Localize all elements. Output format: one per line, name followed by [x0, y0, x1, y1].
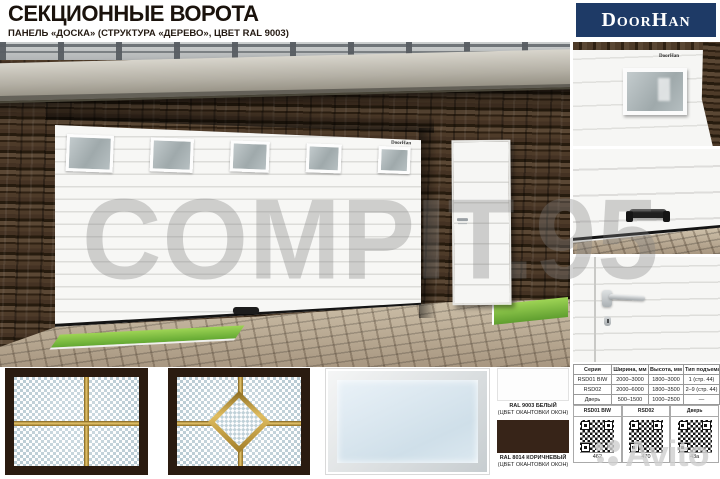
cell-series: Дверь	[574, 395, 612, 405]
brand-logo-text: DoorHan	[601, 9, 690, 32]
brand-logo: DoorHan	[576, 3, 716, 37]
door-edge-line	[594, 257, 596, 362]
gold-muntin-horizontal	[14, 421, 139, 426]
cell-width: 500–1500	[612, 395, 649, 405]
garage-door-window	[306, 143, 342, 173]
spec-table: Серия Ширина, мм Высота, мм Тип подъема …	[573, 364, 720, 405]
qr-code-icon	[580, 420, 614, 453]
cell-width: 2000–3000	[612, 375, 649, 385]
thumb-window-cross	[5, 368, 148, 475]
qr-number: 462	[574, 454, 621, 460]
spec-table-row: RSD01 BIW 2000–3000 1800–3000 1 (стр. 44…	[574, 375, 720, 385]
detail-photo-window: DoorHan	[573, 42, 720, 146]
qr-cell-door: Дверь 43a	[670, 405, 719, 463]
spec-table-header-row: Серия Ширина, мм Высота, мм Тип подъема	[574, 365, 720, 375]
detail-photo-handle	[573, 149, 720, 254]
page-subtitle: ПАНЕЛЬ «ДОСКА» (СТРУКТУРА «ДЕРЕВО», ЦВЕТ…	[8, 28, 289, 39]
stone-edge-top	[573, 42, 720, 50]
cell-width: 2000–6000	[612, 385, 649, 395]
garage-door-window	[66, 134, 114, 173]
panel-window	[623, 68, 687, 115]
page-title: СЕКЦИОННЫЕ ВОРОТА	[8, 1, 258, 27]
garage-door-brand-mark: DoorHan	[391, 141, 411, 147]
entry-door	[451, 140, 511, 305]
qr-code-icon	[678, 420, 712, 453]
qr-cell-rsd02: RSD02 470	[622, 405, 671, 463]
garage-door-window	[378, 146, 411, 174]
lock-cylinder	[604, 316, 611, 326]
col-width: Ширина, мм	[612, 365, 649, 375]
swatch-note: (ЦВЕТ ОКАНТОВКИ ОКОН)	[498, 410, 569, 416]
main-photo-garage-scene: DoorHan	[0, 42, 570, 367]
thumb-window-plain	[325, 368, 490, 475]
catalog-page: СЕКЦИОННЫЕ ВОРОТА ПАНЕЛЬ «ДОСКА» (СТРУКТ…	[0, 0, 720, 479]
col-series: Серия	[574, 365, 612, 375]
qr-code-icon	[629, 420, 663, 453]
garage-door-window	[150, 137, 194, 173]
qr-label: Дверь	[671, 406, 718, 417]
swatch-ral-9003-label: RAL 9003 БЕЛЫЙ (ЦВЕТ ОКАНТОВКИ ОКОН)	[493, 403, 573, 416]
opening-side-shadow	[419, 128, 437, 318]
cell-lift-type: 2–9 (стр. 44)	[684, 385, 720, 395]
qr-number: 470	[623, 454, 670, 460]
swatch-ral-9003	[497, 368, 569, 401]
qr-cell-rsd01: RSD01 BIW 462	[573, 405, 622, 463]
panel-brand-mark: DoorHan	[659, 54, 679, 59]
cell-lift-type: —	[684, 395, 720, 405]
black-door-handle	[629, 209, 667, 218]
swatch-ral-8014	[497, 420, 569, 453]
cell-series: RSD02	[574, 385, 612, 395]
swatch-note: (ЦВЕТ ОКАНТОВКИ ОКОН)	[498, 462, 569, 468]
qr-section: RSD01 BIW 462 RSD02 470 Дверь 43a	[573, 405, 719, 463]
cell-height: 1800–3500	[649, 385, 684, 395]
sectional-garage-door: DoorHan	[55, 125, 421, 327]
thumb-window-diamond	[168, 368, 310, 475]
garage-door-handle	[233, 307, 259, 314]
col-lift-type: Тип подъема	[684, 365, 720, 375]
cell-height: 1000–2500	[649, 395, 684, 405]
cell-series: RSD01 BIW	[574, 375, 612, 385]
cell-height: 1800–3000	[649, 375, 684, 385]
spec-table-row: Дверь 500–1500 1000–2500 —	[574, 395, 720, 405]
qr-label: RSD02	[623, 406, 670, 417]
swatch-ral-8014-label: RAL 8014 КОРИЧНЕВЫЙ (ЦВЕТ ОКАНТОВКИ ОКОН…	[493, 455, 573, 468]
garage-door-window	[230, 140, 270, 172]
qr-number: 43a	[671, 454, 718, 460]
plain-glass	[337, 380, 478, 463]
detail-photo-lock	[573, 257, 720, 362]
qr-label: RSD01 BIW	[574, 406, 621, 417]
col-height: Высота, мм	[649, 365, 684, 375]
garage-door-window-row	[66, 134, 411, 184]
entry-door-handle	[457, 218, 468, 221]
spec-table-row: RSD02 2000–6000 1800–3500 2–9 (стр. 44)	[574, 385, 720, 395]
cell-lift-type: 1 (стр. 44)	[684, 375, 720, 385]
